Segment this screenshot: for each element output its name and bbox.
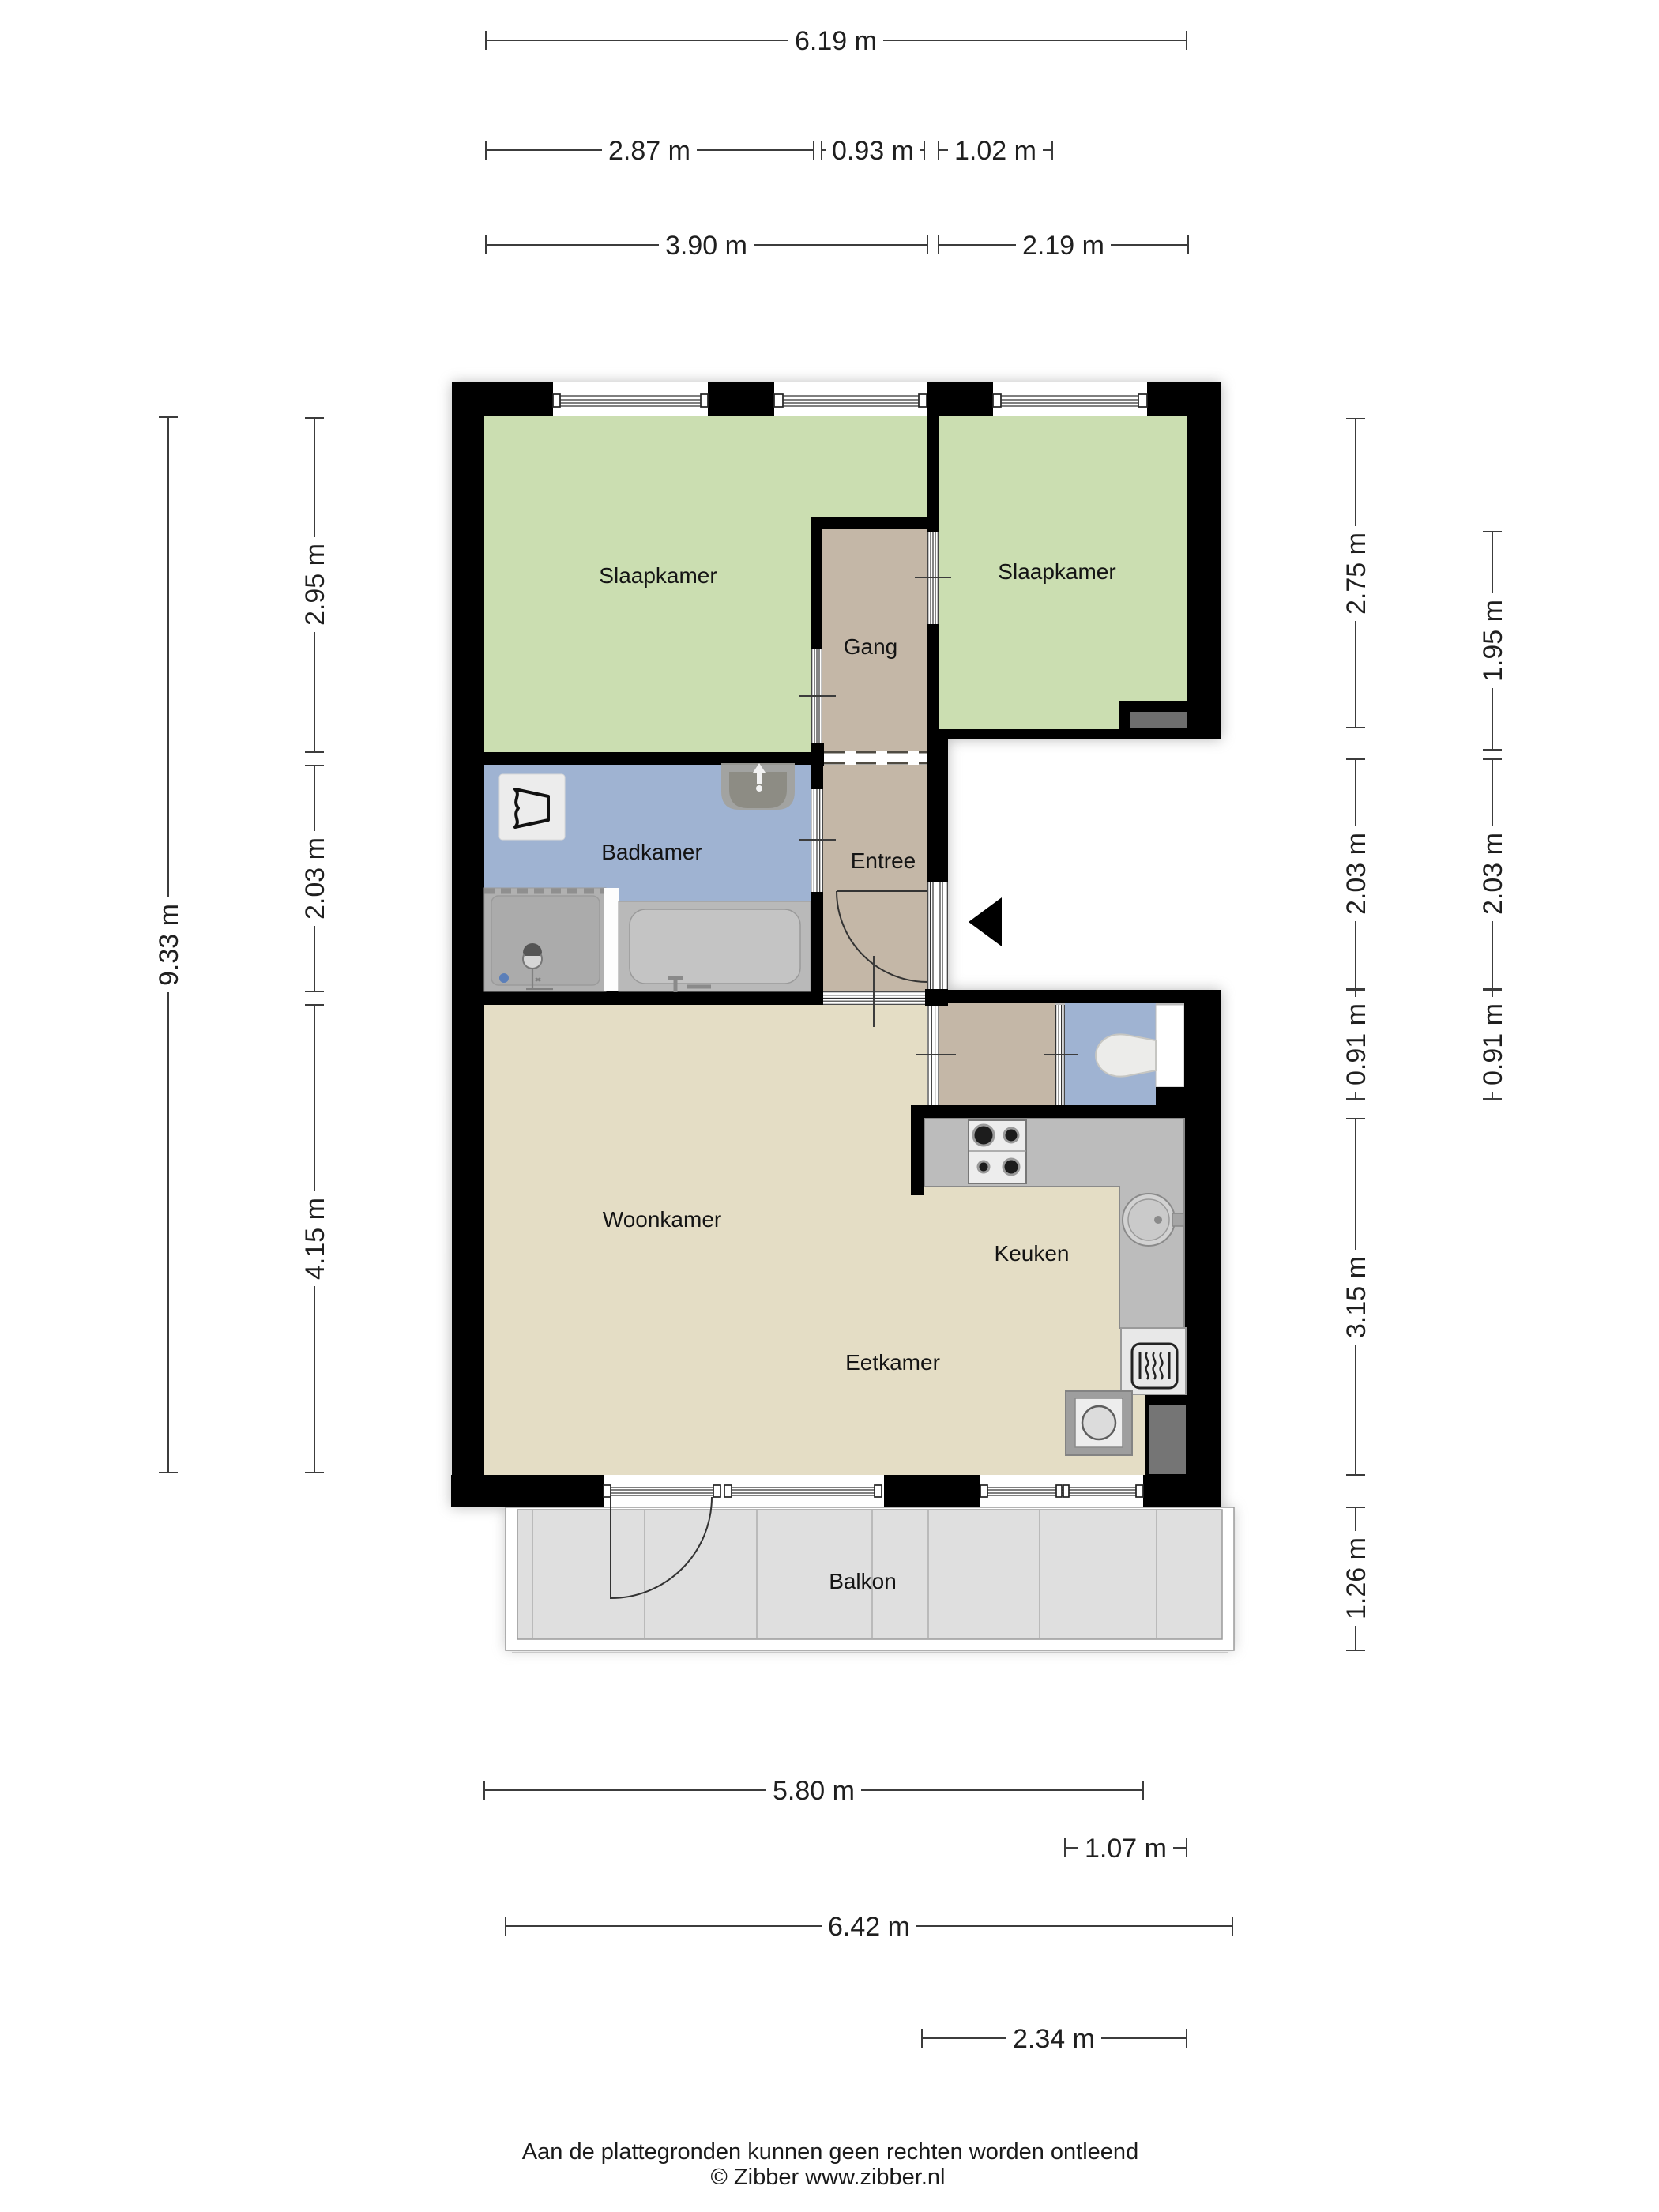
svg-text:2.87 m: 2.87 m: [608, 136, 690, 166]
svg-text:Aan de plattegronden kunnen ge: Aan de plattegronden kunnen geen rechten…: [522, 2139, 1138, 2165]
svg-text:1.26 m: 1.26 m: [1341, 1537, 1371, 1619]
svg-text:2.75 m: 2.75 m: [1341, 532, 1371, 615]
svg-text:0.91 m: 0.91 m: [1478, 1003, 1508, 1085]
svg-text:Balkon: Balkon: [829, 1569, 897, 1593]
svg-text:1.02 m: 1.02 m: [954, 136, 1036, 166]
svg-text:Badkamer: Badkamer: [601, 840, 702, 864]
svg-text:6.42 m: 6.42 m: [828, 1912, 910, 1942]
svg-text:Slaapkamer: Slaapkamer: [998, 559, 1115, 584]
svg-text:6.19 m: 6.19 m: [795, 26, 877, 56]
svg-text:Gang: Gang: [844, 634, 898, 659]
svg-text:Woonkamer: Woonkamer: [603, 1207, 721, 1232]
svg-text:4.15 m: 4.15 m: [300, 1198, 330, 1280]
svg-text:Entree: Entree: [851, 848, 916, 873]
svg-text:1.95 m: 1.95 m: [1478, 600, 1508, 682]
svg-text:© Zibber www.zibber.nl: © Zibber www.zibber.nl: [711, 2165, 946, 2190]
svg-text:3.90 m: 3.90 m: [665, 231, 747, 261]
svg-text:Keuken: Keuken: [995, 1241, 1070, 1266]
svg-text:9.33 m: 9.33 m: [154, 904, 184, 986]
svg-text:Slaapkamer: Slaapkamer: [599, 563, 717, 588]
svg-text:1.07 m: 1.07 m: [1085, 1834, 1167, 1864]
svg-text:2.95 m: 2.95 m: [300, 544, 330, 626]
svg-text:Eetkamer: Eetkamer: [845, 1350, 940, 1375]
svg-text:3.15 m: 3.15 m: [1341, 1256, 1371, 1338]
svg-text:2.34 m: 2.34 m: [1013, 2024, 1095, 2054]
svg-text:2.03 m: 2.03 m: [300, 837, 330, 920]
svg-text:0.93 m: 0.93 m: [832, 136, 914, 166]
svg-text:2.03 m: 2.03 m: [1478, 833, 1508, 915]
svg-text:2.03 m: 2.03 m: [1341, 833, 1371, 915]
svg-text:5.80 m: 5.80 m: [773, 1776, 855, 1806]
svg-text:0.91 m: 0.91 m: [1341, 1003, 1371, 1085]
svg-text:2.19 m: 2.19 m: [1022, 231, 1104, 261]
